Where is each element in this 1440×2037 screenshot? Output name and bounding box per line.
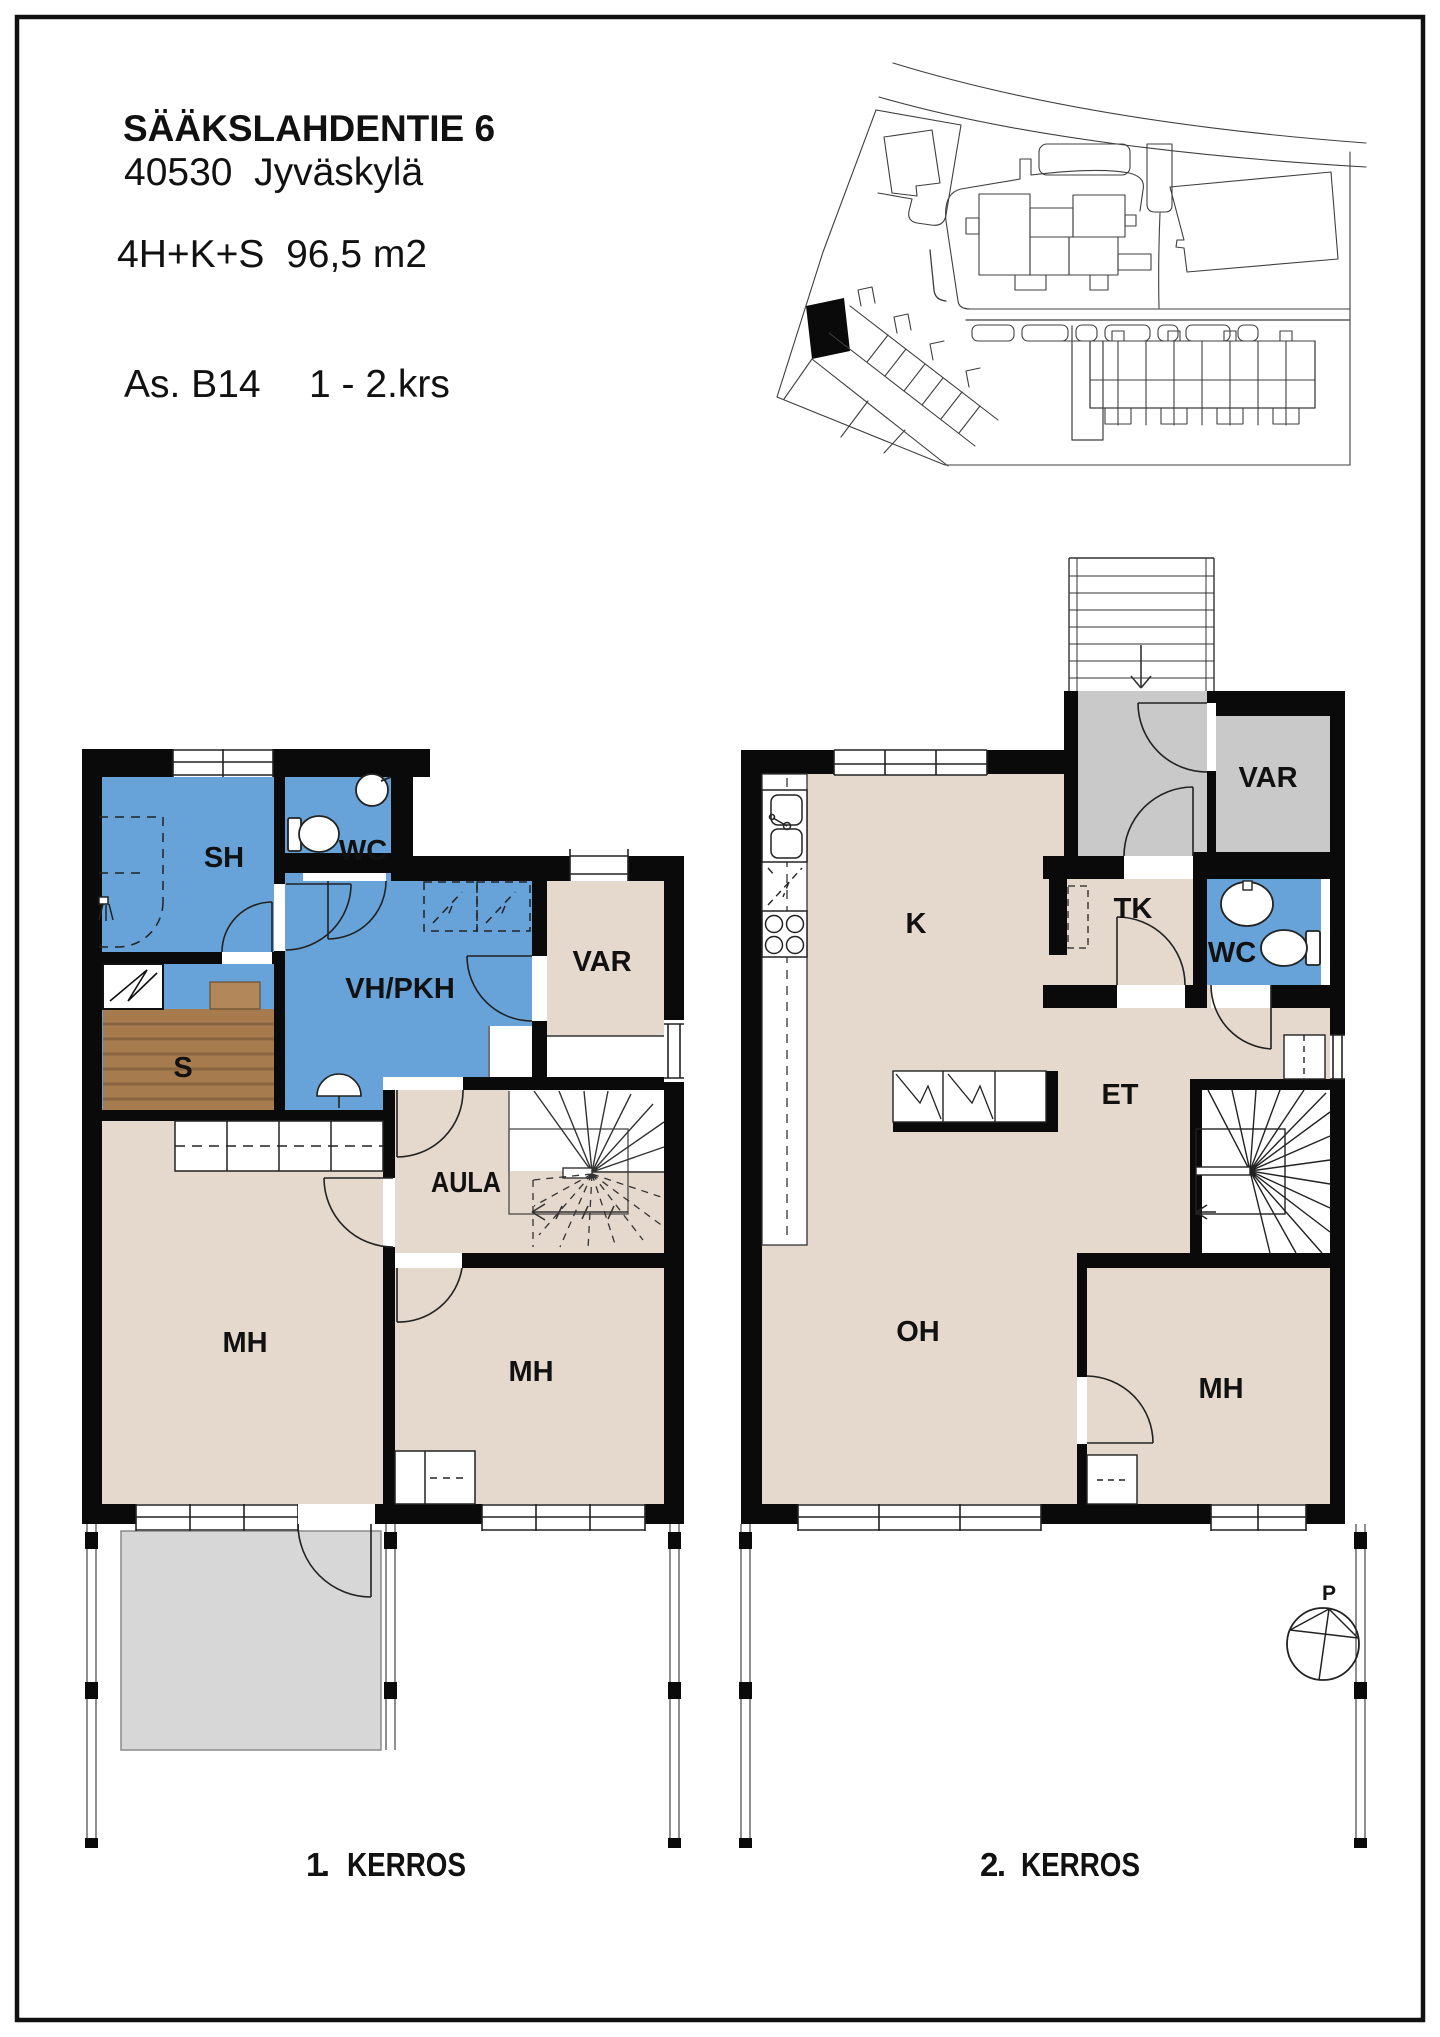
svg-text:SÄÄKSLAHDENTIE 6: SÄÄKSLAHDENTIE 6: [123, 108, 495, 149]
svg-text:SH: SH: [204, 842, 244, 874]
svg-text:As. B14: As. B14: [124, 363, 261, 406]
svg-text:WC: WC: [1208, 937, 1256, 969]
svg-text:TK: TK: [1114, 893, 1153, 925]
svg-text:AULA: AULA: [431, 1167, 501, 1199]
svg-text:MH: MH: [222, 1327, 267, 1359]
svg-text:S: S: [173, 1052, 192, 1084]
svg-text:4H+K+S 96,5 m2: 4H+K+S 96,5 m2: [117, 233, 427, 276]
svg-text:KERROS: KERROS: [347, 1846, 466, 1883]
svg-text:P: P: [1322, 1582, 1336, 1605]
svg-text:1 - 2.krs: 1 - 2.krs: [309, 363, 450, 406]
svg-text:1.: 1.: [306, 1846, 330, 1883]
svg-text:ET: ET: [1101, 1079, 1138, 1111]
svg-text:OH: OH: [896, 1316, 940, 1348]
svg-text:MH: MH: [508, 1356, 553, 1388]
svg-text:40530 Jyväskylä: 40530 Jyväskylä: [124, 151, 423, 194]
svg-text:VAR: VAR: [1238, 762, 1297, 794]
svg-text:VAR: VAR: [572, 946, 631, 978]
svg-text:VH/PKH: VH/PKH: [345, 973, 455, 1005]
svg-text:WC: WC: [339, 835, 387, 867]
svg-text:MH: MH: [1198, 1373, 1243, 1405]
svg-text:2.: 2.: [980, 1846, 1006, 1883]
svg-text:KERROS: KERROS: [1021, 1846, 1140, 1883]
svg-text:K: K: [906, 908, 927, 940]
